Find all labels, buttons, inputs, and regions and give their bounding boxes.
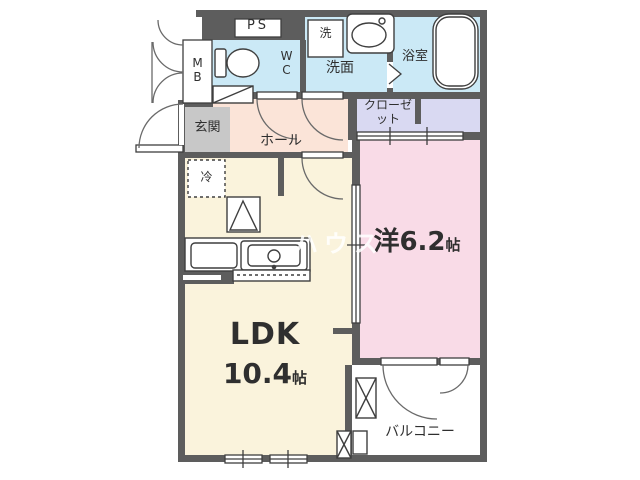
ps-label: PS xyxy=(234,19,282,34)
balcony-door-leaf xyxy=(381,358,437,365)
entrance-label: 玄関 xyxy=(185,121,230,136)
wall xyxy=(469,358,480,365)
entrance-gap xyxy=(179,104,184,145)
wc-label: WC xyxy=(279,50,294,78)
sink-bowl-icon xyxy=(352,23,386,47)
counter-slot xyxy=(183,275,221,280)
wc-door-leaf xyxy=(257,92,297,99)
washroom-door-leaf xyxy=(302,92,343,99)
ldk-size-label: 10.4帖 xyxy=(185,358,345,390)
stove-icon xyxy=(191,243,237,268)
kitchen-drain-dot xyxy=(272,265,275,268)
mb-door-arc xyxy=(153,73,183,103)
wall xyxy=(352,358,381,365)
room-ldk xyxy=(185,158,352,455)
balcony-door-leaf xyxy=(440,358,469,365)
mb-door-arc xyxy=(158,20,183,45)
mb-door-arc xyxy=(153,42,183,72)
wall xyxy=(178,152,185,462)
wall xyxy=(352,140,360,188)
bathroom-label: 浴室 xyxy=(393,50,437,65)
sink-faucet-icon xyxy=(379,18,385,24)
hall-label: ホール xyxy=(250,133,312,149)
washer-label: 洗 xyxy=(308,27,343,41)
ldk-unit: 帖 xyxy=(292,369,307,387)
toilet-tank-icon xyxy=(215,49,226,77)
wall xyxy=(463,132,480,140)
fridge-label: 冷 xyxy=(188,171,225,185)
entrance-door-arc xyxy=(139,104,183,148)
ldk-door-leaf xyxy=(302,152,343,158)
kitchen-faucet-icon xyxy=(268,250,280,262)
entrance-door-leaf xyxy=(136,145,183,152)
western-room-label: 洋6.2帖 xyxy=(352,228,482,258)
western-room-name: 洋6.2 xyxy=(373,227,445,257)
closet-label: クローゼット xyxy=(360,99,416,127)
wall xyxy=(178,152,302,158)
western-room-unit: 帖 xyxy=(446,236,461,254)
floor-plan: PS MB WC 洗 洗面 浴室 クローゼット 玄関 ホール 冷 LDK 10.… xyxy=(0,0,640,480)
wall xyxy=(297,92,302,99)
wall xyxy=(348,92,357,140)
ldk-label: LDK xyxy=(185,318,345,353)
mb-label: MB xyxy=(190,57,205,85)
washroom-label: 洗面 xyxy=(305,60,375,76)
toilet-bowl-icon xyxy=(227,49,259,77)
bathtub-inner-icon xyxy=(436,17,475,86)
wall xyxy=(278,158,284,196)
ldk-size: 10.4 xyxy=(223,357,292,390)
balcony-label: バルコニー xyxy=(365,424,475,440)
